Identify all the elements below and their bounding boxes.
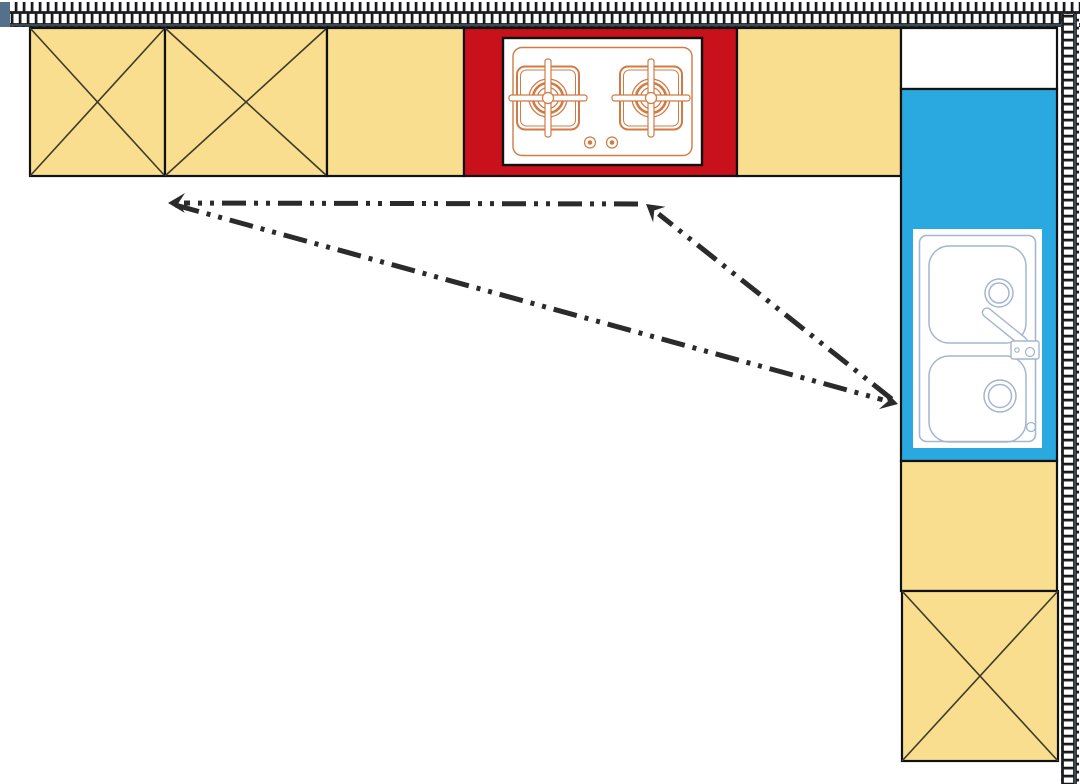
work-triangle-segment-2	[176, 205, 883, 400]
sink-icon	[913, 229, 1042, 448]
floor-plan-canvas	[0, 0, 1080, 784]
work-triangle-segment-1	[184, 203, 638, 204]
top-wall	[0, 2, 1080, 27]
right-wall	[1061, 14, 1079, 784]
cooktop-icon	[503, 38, 702, 165]
corner-counter	[901, 28, 1057, 89]
top-wall-end-cap	[0, 2, 10, 27]
base-cabinet-5	[901, 461, 1057, 591]
base-cabinet-3	[327, 28, 464, 176]
kitchen-floor-plan	[0, 0, 1080, 784]
work-triangle-layer	[168, 193, 901, 414]
base-cabinet-4	[737, 28, 901, 176]
